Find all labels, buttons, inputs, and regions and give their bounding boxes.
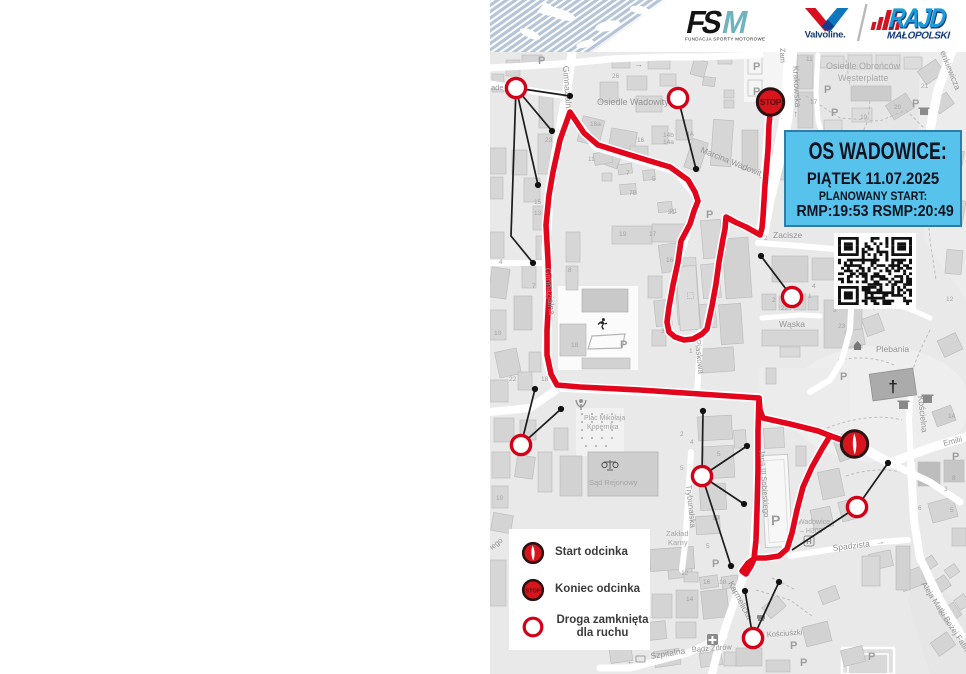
svg-text:16: 16 [637,137,645,144]
svg-text:6: 6 [918,505,922,512]
svg-text:1: 1 [689,348,693,355]
svg-text:2: 2 [680,431,684,438]
svg-text:Zakład: Zakład [666,529,689,538]
svg-text:23: 23 [838,323,846,330]
svg-text:P: P [840,371,847,383]
svg-text:4: 4 [499,259,503,266]
svg-text:P: P [753,61,760,73]
svg-text:18a: 18a [590,121,601,128]
svg-text:14: 14 [686,596,694,603]
svg-text:Zam: Zam [778,48,788,63]
svg-text:Sąd Rejonowy: Sąd Rejonowy [589,478,638,487]
svg-text:RAJD: RAJD [886,3,950,33]
svg-text:P: P [620,339,627,351]
svg-text:←: ← [792,110,802,120]
svg-text:2: 2 [732,589,736,596]
svg-text:→: → [875,536,885,547]
svg-text:14a: 14a [663,139,674,146]
svg-text:12: 12 [946,296,954,303]
svg-text:←: ← [627,657,635,666]
svg-text:21: 21 [921,83,929,90]
svg-text:P: P [790,640,797,652]
svg-text:Zacisze: Zacisze [773,230,803,240]
svg-text:14b: 14b [663,132,674,139]
svg-text:10: 10 [494,330,502,337]
svg-text:Westerplatte: Westerplatte [838,73,888,83]
svg-text:4: 4 [690,439,694,446]
svg-text:11: 11 [588,156,595,163]
svg-text:P: P [952,451,959,463]
svg-text:4: 4 [812,283,816,290]
svg-text:P: P [831,107,838,119]
svg-text:P: P [800,657,807,669]
svg-text:2: 2 [764,235,768,242]
svg-text:2: 2 [772,297,776,304]
svg-text:STOP: STOP [525,589,540,595]
svg-text:Plebania: Plebania [876,344,909,354]
svg-text:22: 22 [509,376,517,383]
svg-text:8: 8 [568,267,572,274]
svg-text:8: 8 [952,475,956,482]
svg-text:5: 5 [950,507,954,514]
svg-text:ade: ade [491,83,504,92]
svg-text:7: 7 [532,283,536,290]
svg-text:19: 19 [619,231,627,238]
svg-text:P: P [706,209,713,221]
svg-text:7: 7 [626,170,630,177]
svg-text:P: P [824,84,831,96]
svg-text:18: 18 [571,342,579,349]
svg-text:⬚: ⬚ [686,292,696,300]
svg-text:3: 3 [944,486,948,493]
svg-text:P: P [538,55,545,67]
svg-text:1: 1 [808,293,812,300]
svg-text:P: P [868,651,875,663]
svg-text:MAŁOPOLSKI: MAŁOPOLSKI [886,31,952,42]
svg-text:5: 5 [652,176,656,183]
svg-text:Plac Mikołaja: Plac Mikołaja [584,415,625,422]
svg-text:7B: 7B [629,190,637,197]
svg-text:5: 5 [706,543,710,550]
svg-text:12: 12 [681,570,689,577]
svg-text:P: P [771,512,780,528]
svg-text:26: 26 [612,73,620,80]
svg-text:P: P [912,98,919,110]
svg-text:14: 14 [948,413,956,420]
svg-text:Valvoline.: Valvoline. [805,30,846,41]
svg-text:Wąska: Wąska [779,319,805,329]
svg-text:18: 18 [719,579,727,586]
svg-text:15: 15 [534,199,542,206]
svg-text:13: 13 [534,210,542,217]
svg-text:STOP: STOP [760,98,782,107]
svg-text:20: 20 [894,104,902,111]
svg-text:5: 5 [680,465,684,472]
svg-text:Wadowice: Wadowice [798,519,830,526]
svg-text:17: 17 [810,99,818,106]
svg-text:5: 5 [717,451,721,458]
svg-text:21: 21 [670,208,678,215]
svg-text:17: 17 [649,231,657,238]
svg-text:19: 19 [860,114,868,121]
svg-text:P: P [712,558,719,570]
svg-text:→: → [634,59,643,69]
svg-text:Osiedle Wadowity: Osiedle Wadowity [597,97,669,107]
svg-text:Karny: Karny [668,538,688,547]
svg-text:16: 16 [703,579,711,586]
svg-text:†: † [888,377,897,396]
svg-text:16: 16 [666,257,674,264]
svg-text:23: 23 [545,137,553,144]
svg-text:11: 11 [806,56,813,63]
svg-text:Osiedle Obrońców: Osiedle Obrońców [826,61,901,71]
svg-text:18: 18 [541,376,549,383]
svg-text:FUNDACJA SPORTY MOTOROWE: FUNDACJA SPORTY MOTOROWE [685,37,765,42]
svg-text:10: 10 [496,495,504,502]
